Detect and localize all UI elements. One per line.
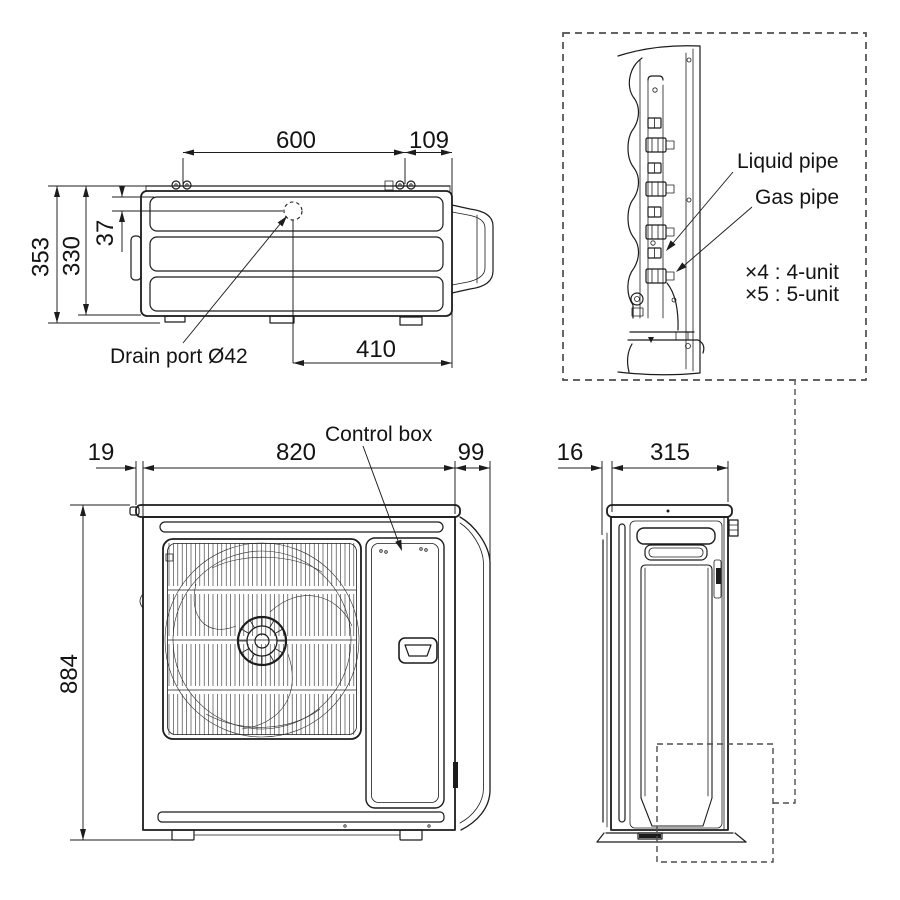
control-box-label: Control box bbox=[325, 423, 433, 446]
top-slat-2 bbox=[150, 237, 443, 271]
side-base bbox=[597, 833, 746, 842]
grille-dividers bbox=[168, 590, 356, 690]
dim-19-label: 19 bbox=[88, 439, 115, 466]
side-view: 16 315 bbox=[557, 381, 795, 862]
dim-353-label: 353 bbox=[28, 237, 55, 277]
top-slat-1 bbox=[150, 197, 443, 231]
top-view-body bbox=[141, 191, 452, 316]
pipe-detail-view: Liquid pipe Gas pipe ×4 : 4-unit ×5 : 5-… bbox=[563, 33, 866, 380]
dim-37-label: 37 bbox=[92, 220, 119, 247]
piping-region-frame bbox=[657, 744, 773, 862]
side-handle-bump bbox=[131, 236, 141, 280]
unit-note-line2: ×5 : 5-unit bbox=[745, 283, 839, 306]
side-body bbox=[611, 517, 728, 830]
drain-port-callout: Drain port Ø42 bbox=[110, 202, 302, 368]
front-top-panel bbox=[136, 505, 460, 517]
drawing-canvas: Drain port Ø42 600 109 353 330 37 bbox=[0, 0, 900, 900]
top-view-dimensions: 600 109 353 330 37 410 bbox=[28, 127, 453, 368]
top-view-valve-cover bbox=[452, 205, 493, 293]
side-inner-panel bbox=[641, 565, 712, 826]
flare-fittings bbox=[648, 118, 661, 258]
front-base-rail bbox=[158, 812, 444, 822]
dim-99-label: 99 bbox=[458, 439, 485, 466]
detail-labels: Liquid pipe Gas pipe ×4 : 4-unit ×5 : 5-… bbox=[666, 150, 839, 306]
detail-base bbox=[628, 283, 704, 372]
liquid-pipe-label: Liquid pipe bbox=[737, 150, 839, 173]
side-handle bbox=[637, 528, 715, 560]
fan-grille-frame bbox=[163, 539, 361, 739]
top-foot-right bbox=[400, 317, 422, 325]
dim-410-label: 410 bbox=[356, 336, 396, 363]
top-view: Drain port Ø42 600 109 353 330 37 bbox=[28, 127, 494, 368]
control-box-panel bbox=[366, 538, 444, 808]
detail-drawing bbox=[618, 46, 704, 375]
top-view-unit-outline bbox=[131, 181, 493, 325]
dim-884-label: 884 bbox=[56, 654, 83, 694]
detail-link-line bbox=[773, 381, 795, 803]
service-valves bbox=[646, 138, 674, 283]
front-right-side-panel bbox=[453, 517, 490, 830]
side-latch bbox=[729, 520, 738, 536]
gas-pipe-leader bbox=[679, 207, 752, 270]
panel-handle bbox=[399, 638, 437, 663]
top-slat-3 bbox=[150, 277, 443, 311]
dim-109-label: 109 bbox=[409, 127, 449, 154]
front-unit-outline bbox=[130, 505, 490, 840]
control-box-leader bbox=[363, 446, 401, 549]
front-foot-left bbox=[172, 830, 194, 840]
drain-port-label: Drain port Ø42 bbox=[110, 345, 248, 368]
dim-16-label: 16 bbox=[557, 439, 584, 466]
dim-600-label: 600 bbox=[276, 127, 316, 154]
dim-315-label: 315 bbox=[650, 439, 690, 466]
drain-port-circle bbox=[284, 202, 302, 220]
back-corner-trim bbox=[619, 524, 625, 822]
top-foot-mid bbox=[270, 316, 294, 323]
dim-820-label: 820 bbox=[276, 439, 316, 466]
front-top-vent-slot bbox=[160, 522, 443, 532]
gas-pipe-label: Gas pipe bbox=[755, 186, 839, 209]
outdoor-unit-dimension-drawing: Drain port Ø42 600 109 353 330 37 bbox=[0, 0, 900, 900]
front-body bbox=[143, 517, 455, 830]
front-view: Control box 19 820 99 884 bbox=[56, 423, 490, 840]
side-unit-outline bbox=[597, 505, 746, 842]
unit-note-line1: ×4 : 4-unit bbox=[745, 261, 839, 284]
fan-hub bbox=[238, 617, 286, 665]
fan-grille-bars bbox=[169, 543, 354, 735]
front-view-dimensions: 19 820 99 884 bbox=[56, 439, 490, 840]
front-foot-right bbox=[400, 830, 422, 840]
dim-330-label: 330 bbox=[59, 236, 86, 276]
